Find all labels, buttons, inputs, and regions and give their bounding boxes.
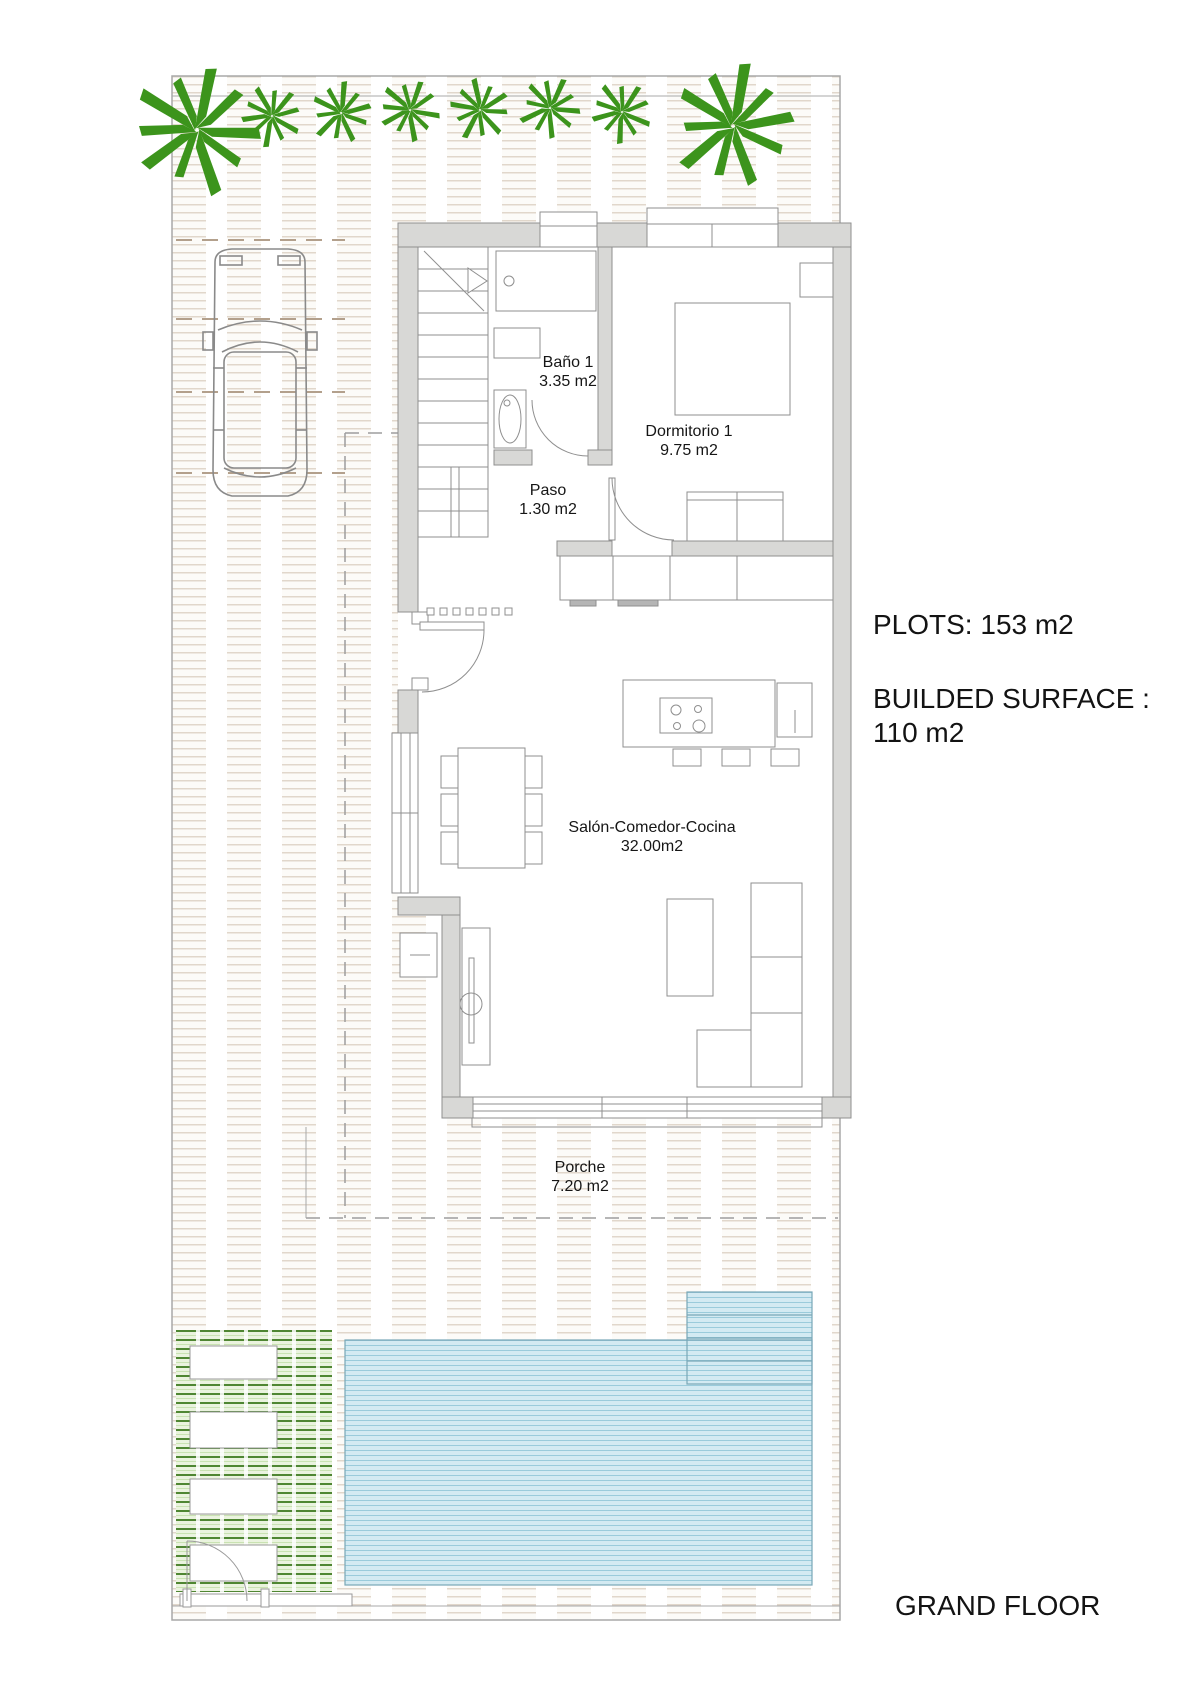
tv-unit <box>460 928 490 1065</box>
room-label-salon: Salón-Comedor-Cocina 32.00m2 <box>568 818 735 856</box>
room-area: 3.35 m2 <box>539 372 597 391</box>
room-area: 7.20 m2 <box>551 1177 609 1196</box>
room-area: 32.00m2 <box>568 837 735 856</box>
room-area: 1.30 m2 <box>519 500 577 519</box>
palm-trees <box>119 52 806 207</box>
plots-annotation: PLOTS: 153 m2 <box>873 608 1074 642</box>
pool-outlines <box>345 1292 812 1585</box>
chair <box>525 832 542 864</box>
chair <box>441 794 458 826</box>
sunbed <box>190 1479 277 1514</box>
palm-tree-icon <box>228 71 316 159</box>
room-label-bano: Baño 1 3.35 m2 <box>539 353 597 391</box>
car <box>203 249 317 496</box>
builded-surface-line2: 110 m2 <box>873 716 1150 750</box>
builded-surface-annotation: BUILDED SURFACE : 110 m2 <box>873 682 1150 750</box>
outdoor-unit <box>400 933 437 977</box>
nightstand <box>800 263 833 297</box>
dining-table <box>458 748 525 868</box>
room-label-porche: Porche 7.20 m2 <box>551 1158 609 1196</box>
room-name: Baño 1 <box>539 353 597 372</box>
coffee-table <box>667 899 713 996</box>
room-area: 9.75 m2 <box>645 441 732 460</box>
palm-tree-icon <box>578 68 665 155</box>
room-name: Porche <box>551 1158 609 1177</box>
room-label-dormitorio: Dormitorio 1 9.75 m2 <box>645 422 732 460</box>
palm-tree-icon <box>516 74 584 142</box>
chair <box>441 756 458 788</box>
room-name: Salón-Comedor-Cocina <box>568 818 735 837</box>
palm-tree-icon <box>370 69 450 149</box>
chair <box>525 794 542 826</box>
builded-surface-line1: BUILDED SURFACE : <box>873 682 1150 716</box>
sunbeds <box>190 1346 277 1581</box>
floor-title: GRAND FLOOR <box>895 1589 1100 1623</box>
dining-set <box>441 748 542 868</box>
room-label-paso: Paso 1.30 m2 <box>519 481 577 519</box>
sunbed <box>190 1412 277 1448</box>
room-name: Paso <box>519 481 577 500</box>
palm-tree-icon <box>437 66 523 152</box>
threshold-dots <box>427 608 512 615</box>
palm-tree-icon <box>303 74 380 151</box>
floorplan-canvas: - ESTATE SPAIN - <box>0 0 1204 1704</box>
room-name: Dormitorio 1 <box>645 422 732 441</box>
wardrobe <box>687 492 783 541</box>
bedroom-window <box>647 208 778 247</box>
chair <box>441 832 458 864</box>
bed <box>675 303 790 415</box>
parking-markings <box>176 240 345 473</box>
bathroom-window <box>540 212 597 247</box>
sunbed <box>190 1346 277 1379</box>
living-room-window <box>392 733 418 893</box>
chair <box>525 756 542 788</box>
palm-tree-icon <box>661 52 806 197</box>
palm-tree-icon <box>119 52 274 207</box>
porch-sliding-door <box>472 1097 822 1127</box>
